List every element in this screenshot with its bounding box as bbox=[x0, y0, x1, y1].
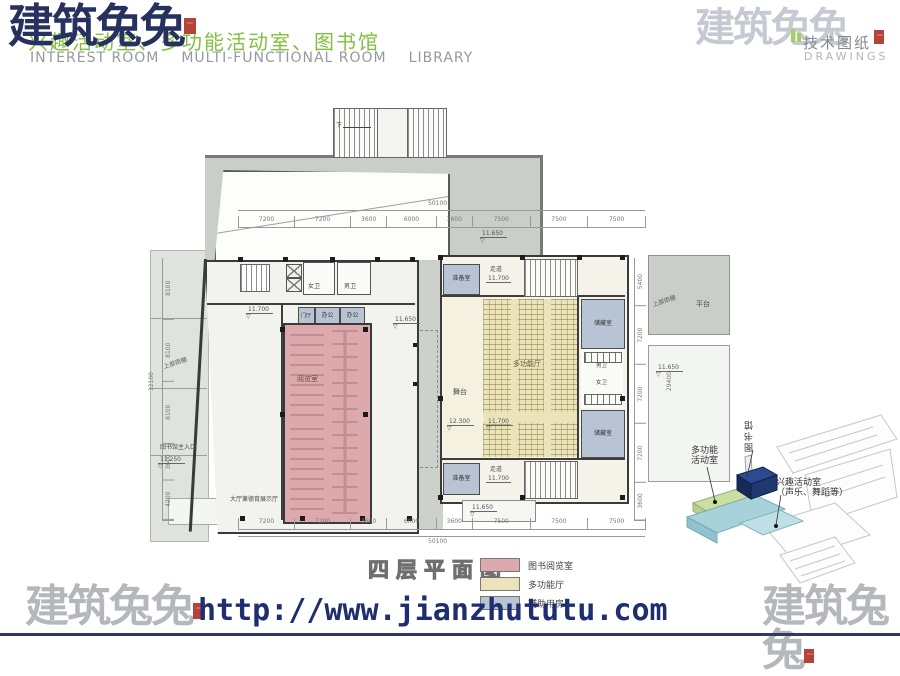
elevation-value: 11.700 bbox=[488, 275, 509, 282]
seal-icon bbox=[804, 649, 814, 663]
seat-aisle bbox=[544, 299, 551, 457]
subtitle-en-term: LIBRARY bbox=[409, 50, 474, 66]
prep-room-top: 准备室 bbox=[443, 264, 480, 295]
stair-library bbox=[240, 264, 270, 292]
dim-segment: 3600 bbox=[436, 518, 472, 529]
seal-icon bbox=[184, 18, 196, 34]
drawings-label-en: DRAWINGS bbox=[804, 50, 888, 63]
legend-label: 多功能厅 bbox=[528, 578, 564, 591]
brand-logo: 建筑兔兔 bbox=[8, 3, 196, 49]
dim-segment: 3600 bbox=[436, 216, 472, 227]
key-label-line: 活动室 bbox=[691, 456, 718, 466]
elevation-marker: 11.250▽ bbox=[158, 456, 185, 469]
column-marker bbox=[283, 257, 288, 262]
corridor-top-level: 11.700 bbox=[486, 275, 511, 283]
prep-room-label: 准备室 bbox=[452, 276, 470, 283]
brand-logo-text: 建筑兔兔 bbox=[762, 581, 888, 676]
seal-icon bbox=[874, 30, 884, 44]
column-marker bbox=[280, 327, 285, 332]
column-marker bbox=[438, 255, 443, 260]
column-marker bbox=[363, 412, 368, 417]
dim-segment: 7200 bbox=[635, 306, 646, 365]
column-marker bbox=[413, 382, 417, 386]
dim-segment: 7200 bbox=[238, 518, 294, 529]
subtitle-en-term: MULTI-FUNCTIONAL ROOM bbox=[181, 50, 386, 66]
column-marker bbox=[438, 396, 443, 401]
storage-label: 储藏室 bbox=[594, 431, 612, 438]
dim-segment: 7500 bbox=[587, 216, 645, 227]
dim-segment: 8100 bbox=[163, 382, 174, 444]
header: 兴趣活动室、多功能活动室、图书馆 INTEREST ROOM MULTI-FUN… bbox=[0, 0, 900, 90]
dim-segment: 6000 bbox=[386, 518, 435, 529]
wall bbox=[577, 297, 579, 458]
dim-segment: 4200 bbox=[163, 480, 174, 520]
column-marker bbox=[438, 495, 443, 500]
brand-logo-watermark-bottom-left: 建筑兔兔 bbox=[25, 585, 205, 629]
site-line bbox=[150, 318, 207, 319]
storage-room-2: 储藏室 bbox=[581, 410, 625, 458]
legend-item: 图书阅览室 bbox=[480, 558, 573, 572]
stair-down-label: 下 bbox=[336, 122, 342, 129]
void-diagonal bbox=[214, 194, 450, 234]
legend-item: 多功能厅 bbox=[480, 577, 573, 591]
column-marker bbox=[238, 257, 243, 262]
hall-label: 大厅兼德育展示厅 bbox=[230, 496, 278, 503]
stair-top-left bbox=[333, 108, 379, 158]
dim-segment: 7200 bbox=[294, 216, 350, 227]
legend-swatch bbox=[480, 577, 520, 591]
dim-segment: 3600 bbox=[635, 483, 646, 521]
site-url-link[interactable]: http://www.jianzhututu.com bbox=[198, 593, 668, 628]
toilet-stalls bbox=[584, 394, 622, 405]
dim-chain-bottom: 72007200360060003600750075007500 bbox=[238, 518, 646, 530]
stage-label: 舞台 bbox=[453, 388, 467, 396]
column-marker bbox=[413, 343, 417, 347]
column-marker bbox=[620, 255, 625, 260]
dim-total-line-bottom bbox=[238, 536, 645, 537]
prep-room-bottom: 准备室 bbox=[443, 463, 480, 495]
stair-multi-top bbox=[524, 259, 578, 297]
key-label-interest: 兴趣活动室 （声乐、舞蹈等） bbox=[776, 478, 848, 499]
toilet-women-label: 女卫 bbox=[308, 283, 320, 290]
corridor-top-label: 走道 bbox=[490, 266, 502, 273]
key-label-line: 多功能 bbox=[691, 446, 718, 456]
key-diagram bbox=[685, 405, 900, 605]
legend-label: 图书阅览室 bbox=[528, 559, 573, 572]
dim-segment: 7500 bbox=[530, 216, 588, 227]
dim-segment: 7200 bbox=[238, 216, 294, 227]
elevation-marker: 11.650▽ bbox=[480, 230, 507, 243]
stage bbox=[443, 297, 482, 458]
reading-room-desks bbox=[332, 330, 358, 514]
column-marker bbox=[520, 495, 525, 500]
prep-room-label: 准备室 bbox=[452, 476, 470, 483]
brand-logo-text: 建筑兔兔 bbox=[8, 0, 184, 53]
dim-chain-left: 81008100810036004200 bbox=[162, 258, 174, 521]
dim-total-top: 50100 bbox=[428, 200, 447, 207]
seat-aisle bbox=[511, 299, 518, 457]
elevation-value: 11.700 bbox=[488, 475, 509, 482]
elevation-marker: 11.650▽ bbox=[656, 364, 683, 377]
column-marker bbox=[520, 255, 525, 260]
toilet-stalls bbox=[584, 352, 622, 363]
reading-room-shelves bbox=[290, 428, 324, 513]
dim-segment: 7500 bbox=[472, 518, 530, 529]
corridor-bottom-level: 11.700 bbox=[486, 475, 511, 483]
column-marker bbox=[620, 495, 625, 500]
column-marker bbox=[363, 327, 368, 332]
reading-room-label: 阅览室 bbox=[297, 375, 318, 383]
dim-chain-right: 54007200720072003600 bbox=[634, 258, 646, 521]
elevation-marker: 11.650▽ bbox=[470, 504, 497, 517]
wall bbox=[440, 458, 625, 460]
dim-segment: 7200 bbox=[635, 424, 646, 483]
dim-segment: 7500 bbox=[472, 216, 530, 227]
dim-segment: 7500 bbox=[530, 518, 588, 529]
column-marker bbox=[410, 257, 415, 262]
dim-segment: 6000 bbox=[386, 216, 435, 227]
elevator-shaft bbox=[286, 278, 302, 292]
dim-segment: 7200 bbox=[635, 365, 646, 424]
key-label-multi: 多功能 活动室 bbox=[691, 446, 718, 467]
elevation-marker: 12.300▽ bbox=[447, 418, 474, 431]
legend-swatch bbox=[480, 558, 520, 572]
stair-top-right bbox=[407, 108, 447, 158]
platform-right bbox=[648, 255, 730, 335]
toilet-women2-label: 女卫 bbox=[596, 380, 607, 387]
stair-arrow bbox=[343, 127, 371, 128]
multi-hall-seats bbox=[483, 299, 577, 457]
dim-segment: 7200 bbox=[294, 518, 350, 529]
green-bars-icon bbox=[791, 27, 803, 46]
brand-logo-watermark-bottom-right: 建筑兔兔 bbox=[762, 585, 900, 673]
elevation-marker: 11.700▽ bbox=[486, 418, 513, 431]
wireframe-building bbox=[763, 415, 897, 583]
column-marker bbox=[330, 257, 335, 262]
key-label-line: 兴趣活动室 bbox=[776, 478, 848, 488]
corridor-bottom-label: 走道 bbox=[490, 466, 502, 473]
storage-label: 储藏室 bbox=[594, 321, 612, 328]
elevation-marker: 11.650▽ bbox=[393, 316, 420, 329]
column-marker bbox=[280, 412, 285, 417]
toilet-men2-label: 男卫 bbox=[596, 363, 607, 370]
lobby-label: 门厅 bbox=[301, 313, 311, 319]
key-label-library: 图书馆 bbox=[745, 418, 755, 452]
office-label: 办公 bbox=[321, 313, 333, 320]
column-marker bbox=[620, 396, 625, 401]
toilet-men-label: 男卫 bbox=[344, 283, 356, 290]
column-marker bbox=[375, 257, 380, 262]
stair-top-gap bbox=[377, 108, 409, 158]
column-marker bbox=[577, 255, 582, 260]
multi-hall-label: 多功能厅 bbox=[512, 360, 542, 368]
stair-multi-bottom bbox=[524, 461, 578, 499]
dim-total-line-top bbox=[238, 210, 645, 211]
platform-right-label: 平台 bbox=[696, 300, 710, 308]
key-label-line: （声乐、舞蹈等） bbox=[776, 488, 848, 498]
dim-segment: 3600 bbox=[350, 216, 386, 227]
footer-divider-line bbox=[0, 633, 900, 636]
brand-logo-text: 建筑兔兔 bbox=[25, 581, 193, 632]
elevation-marker: 11.700▽ bbox=[246, 306, 273, 319]
dim-segment: 8100 bbox=[163, 258, 174, 320]
dim-segment: 8100 bbox=[163, 320, 174, 382]
office-label: 办公 bbox=[346, 313, 358, 320]
dim-total-left: 32100 bbox=[148, 372, 155, 391]
dim-total-bottom: 50100 bbox=[428, 538, 447, 545]
dim-chain-top: 72007200360060003600750075007500 bbox=[238, 216, 646, 228]
elevator-shaft bbox=[286, 264, 302, 278]
dim-segment: 5400 bbox=[635, 258, 646, 306]
storage-room-1: 储藏室 bbox=[581, 299, 625, 349]
wall bbox=[207, 303, 415, 305]
dim-segment: 3600 bbox=[350, 518, 386, 529]
